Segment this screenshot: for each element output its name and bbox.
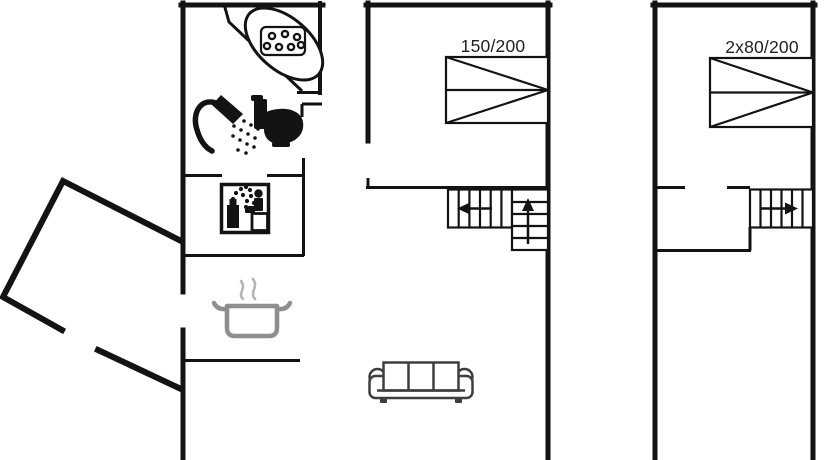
- sauna-person-legs: [245, 206, 255, 213]
- annex-diagonal-walls: [3, 181, 181, 389]
- sauna-person-head: [254, 189, 262, 197]
- pot-steam: [241, 279, 255, 299]
- floor-plan: 150/200: [0, 0, 834, 460]
- pot-body: [227, 306, 277, 336]
- staircase-right: [750, 190, 813, 228]
- twin-bed-label: 2x80/200: [725, 37, 799, 57]
- wall-bath-door-jamb: [297, 93, 322, 118]
- floorplan-canvas: 150/200: [0, 0, 834, 460]
- sauna-person-torso: [254, 198, 263, 211]
- twin-bed: 2x80/200: [710, 37, 813, 127]
- staircase-middle: [448, 190, 548, 251]
- toilet-bowl: [264, 109, 303, 144]
- shower-head: [212, 95, 243, 124]
- wall-landing: [653, 227, 751, 251]
- stair-run-vertical: [512, 190, 548, 251]
- toilet-base: [272, 142, 290, 147]
- shower-hose: [195, 102, 216, 151]
- shower-icon: [195, 95, 259, 155]
- sauna-stove: [227, 205, 239, 228]
- cooking-pot-icon: [214, 279, 290, 336]
- sofa-icon: [370, 363, 473, 404]
- entrance-annex-walls: [3, 181, 181, 389]
- double-bed: 150/200: [446, 36, 548, 123]
- toilet-icon: [251, 95, 303, 147]
- double-bed-label: 150/200: [461, 36, 526, 56]
- sauna-icon: [222, 185, 269, 233]
- toilet-lid: [251, 95, 263, 101]
- sauna-bench: [252, 214, 268, 231]
- sofa-cushions: [384, 363, 459, 391]
